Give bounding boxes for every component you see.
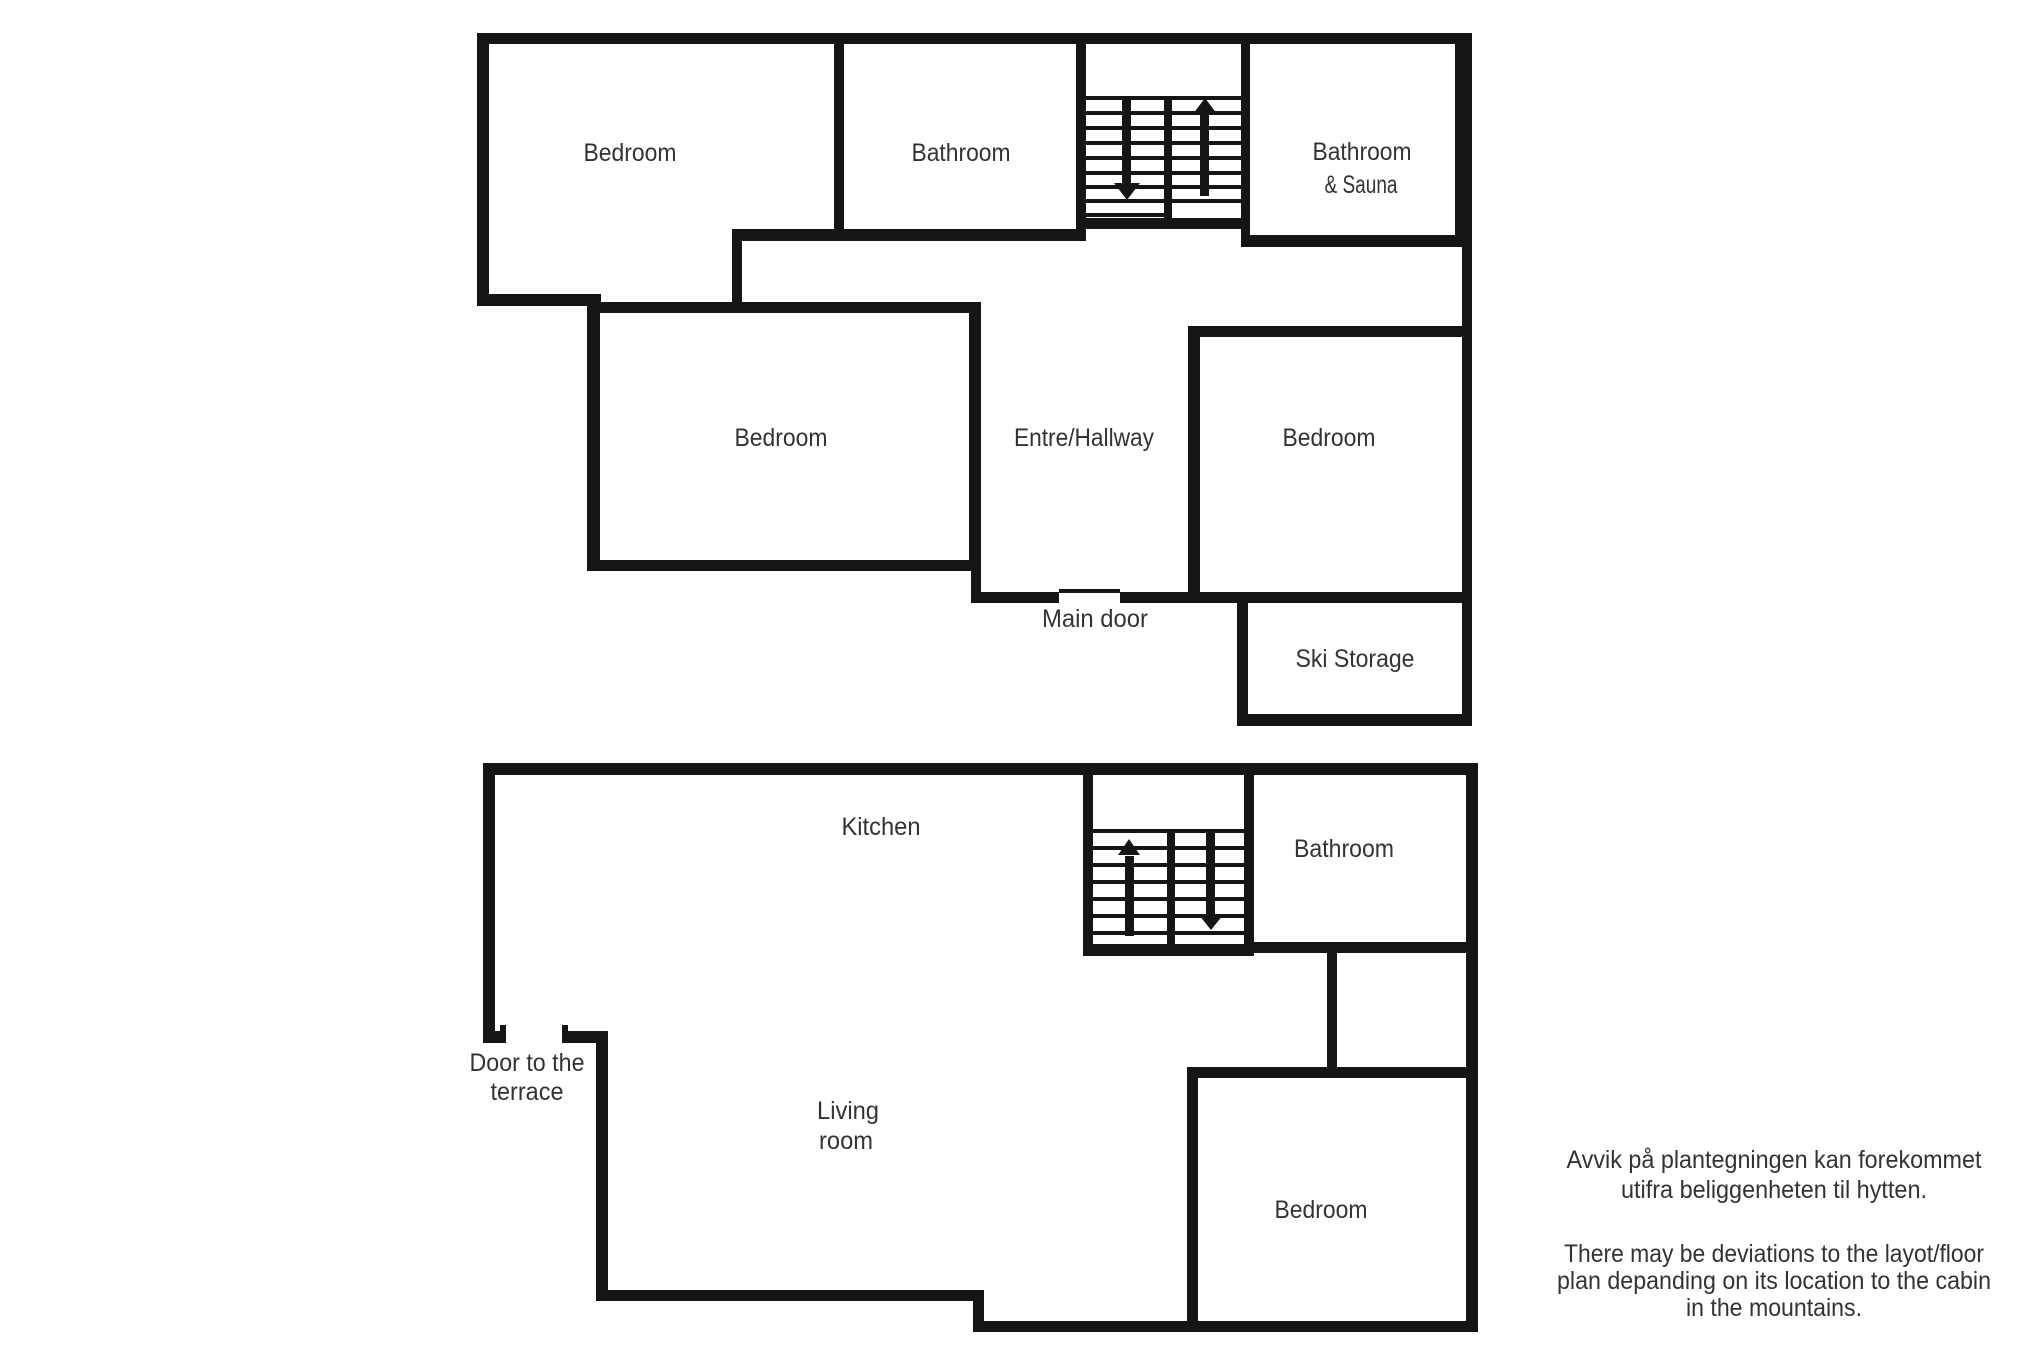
svg-text:Bedroom: Bedroom	[584, 139, 677, 167]
svg-text:utifra beliggenheten til hytte: utifra beliggenheten til hytten.	[1621, 1176, 1927, 1204]
svg-text:Bedroom: Bedroom	[1283, 424, 1376, 452]
svg-text:& Sauna: & Sauna	[1325, 171, 1398, 199]
svg-text:Bathroom: Bathroom	[1294, 835, 1394, 863]
svg-text:Main door: Main door	[1042, 605, 1148, 633]
svg-text:Bedroom: Bedroom	[1275, 1196, 1368, 1224]
svg-text:Entre/Hallway: Entre/Hallway	[1014, 424, 1154, 452]
svg-text:Bathroom: Bathroom	[1313, 138, 1412, 166]
svg-text:terrace: terrace	[491, 1078, 564, 1106]
svg-text:Door to the: Door to the	[470, 1049, 585, 1077]
svg-text:There may be deviations to the: There may be deviations to the layot/flo…	[1564, 1240, 1984, 1268]
svg-text:room: room	[819, 1127, 873, 1155]
svg-text:plan depanding on its location: plan depanding on its location to the ca…	[1557, 1267, 1991, 1295]
svg-text:Ski Storage: Ski Storage	[1296, 645, 1415, 673]
svg-text:Bathroom: Bathroom	[912, 139, 1011, 167]
svg-text:Kitchen: Kitchen	[842, 813, 921, 841]
svg-text:in the mountains.: in the mountains.	[1686, 1294, 1862, 1322]
svg-text:Bedroom: Bedroom	[735, 424, 828, 452]
svg-text:Living: Living	[817, 1097, 879, 1125]
svg-text:Avvik på plantegningen kan for: Avvik på plantegningen kan forekommet	[1567, 1146, 1982, 1174]
